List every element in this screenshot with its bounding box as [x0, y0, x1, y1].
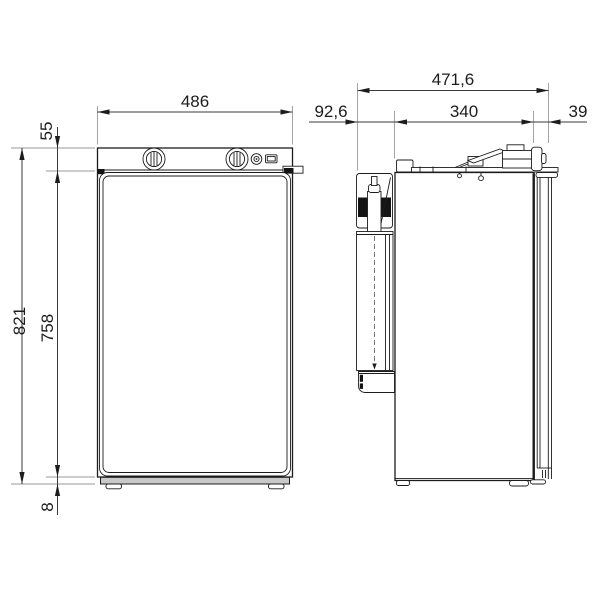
- side-view: [357, 145, 559, 486]
- dim-side-door-depth-label: 39: [569, 102, 588, 121]
- dim-side-overall-depth: 471,6: [358, 70, 549, 93]
- front-switch: [266, 155, 278, 163]
- front-igniter: [251, 154, 262, 165]
- front-door-outer: [100, 173, 291, 477]
- dim-front-panel-height-label: 55: [37, 122, 56, 141]
- side-burner-box: [359, 372, 395, 393]
- dim-side-overall-depth-label: 471,6: [432, 70, 475, 89]
- front-plinth: [101, 477, 290, 484]
- drawing-page: 486 821 55 758 8: [0, 0, 600, 600]
- front-hinge-right: [283, 166, 303, 173]
- side-foot-front: [510, 481, 529, 487]
- dim-front-width: 486: [98, 92, 293, 115]
- side-door: [536, 173, 558, 479]
- front-knob-right: [226, 148, 248, 170]
- dim-side-cabinet-depth-label: 340: [450, 102, 478, 121]
- side-cabinet-outline: [395, 173, 534, 481]
- dim-front-base-gap-label: 8: [38, 502, 57, 511]
- dim-front-heights-chain: 55 758 8: [37, 122, 60, 515]
- dim-front-overall-height: 821: [10, 148, 29, 484]
- side-absorber-unit: [357, 232, 394, 371]
- front-view: [98, 148, 304, 489]
- dim-side-cooling-unit-depth-label: 92,6: [314, 102, 347, 121]
- technical-drawing: 486 821 55 758 8: [0, 0, 600, 600]
- side-foot-rear: [397, 481, 410, 486]
- front-foot-left: [106, 484, 122, 489]
- dim-front-width-label: 486: [181, 92, 209, 111]
- dim-front-door-height-label: 758: [38, 314, 57, 342]
- side-door-foot: [531, 480, 546, 484]
- side-boiler-unit: [357, 174, 393, 233]
- dim-front-overall-height-label: 821: [10, 307, 29, 335]
- front-foot-right: [269, 484, 285, 489]
- front-knob-left: [143, 148, 165, 170]
- dim-side-depth-chain: 92,6 340 39: [309, 102, 587, 125]
